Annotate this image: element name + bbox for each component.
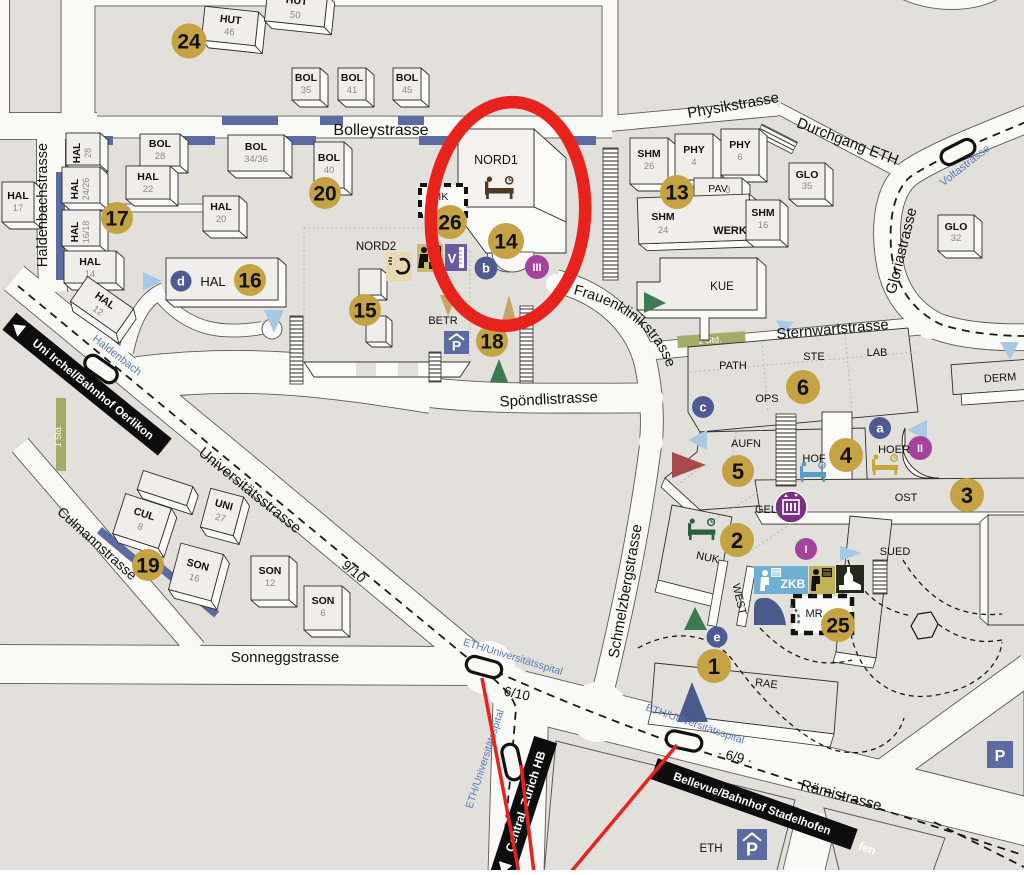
- svg-text:c: c: [699, 400, 706, 415]
- svg-text:18: 18: [480, 331, 504, 354]
- svg-text:P: P: [452, 338, 461, 354]
- svg-text:12: 12: [265, 578, 276, 589]
- svg-text:BOL: BOL: [318, 152, 341, 164]
- svg-text:1 Std.: 1 Std.: [53, 425, 63, 447]
- svg-text:KUE: KUE: [710, 281, 734, 293]
- svg-text:V: V: [448, 251, 457, 266]
- svg-text:b: b: [482, 261, 490, 276]
- svg-text:16: 16: [238, 270, 261, 293]
- svg-text:BOL: BOL: [341, 72, 364, 84]
- svg-text:45: 45: [402, 85, 413, 96]
- svg-text:6: 6: [737, 152, 742, 163]
- svg-text:HAL: HAL: [200, 274, 225, 289]
- svg-text:WERK: WERK: [713, 225, 747, 237]
- svg-text:SHM: SHM: [637, 148, 661, 160]
- svg-text:25: 25: [826, 615, 850, 638]
- svg-text:OST: OST: [895, 492, 918, 504]
- svg-text:26: 26: [438, 212, 461, 235]
- svg-text:16/18: 16/18: [81, 221, 91, 244]
- svg-text:50: 50: [289, 9, 301, 21]
- svg-text:a: a: [876, 421, 884, 436]
- svg-text:2: 2: [731, 528, 743, 553]
- svg-text:OPS: OPS: [755, 393, 778, 405]
- svg-text:15: 15: [353, 300, 377, 323]
- svg-text:4: 4: [691, 157, 696, 168]
- svg-text:17: 17: [105, 208, 128, 231]
- svg-text:34/36: 34/36: [244, 154, 268, 165]
- svg-text:d: d: [177, 274, 185, 289]
- svg-text:16: 16: [758, 220, 769, 231]
- svg-text:28: 28: [83, 148, 93, 158]
- svg-text:BOL: BOL: [149, 138, 172, 150]
- svg-text:41: 41: [347, 85, 358, 96]
- svg-text:SON: SON: [259, 565, 282, 577]
- svg-text:NORD1: NORD1: [474, 153, 518, 167]
- svg-text:HAL: HAL: [210, 201, 232, 213]
- svg-text:NORD2: NORD2: [356, 241, 396, 253]
- svg-text:14: 14: [494, 231, 518, 254]
- svg-text:P: P: [995, 748, 1006, 765]
- svg-text:LAB: LAB: [867, 347, 888, 359]
- svg-text:4: 4: [840, 443, 853, 468]
- svg-text:35: 35: [301, 85, 312, 96]
- svg-text:24/26: 24/26: [81, 178, 91, 201]
- svg-text:20: 20: [313, 183, 336, 206]
- svg-text:BOL: BOL: [396, 72, 419, 84]
- svg-text:5: 5: [732, 459, 744, 484]
- svg-text:BETR: BETR: [428, 315, 457, 327]
- svg-text:ZKB: ZKB: [781, 577, 806, 591]
- svg-text:24: 24: [658, 225, 669, 236]
- svg-text:HOER: HOER: [878, 444, 910, 456]
- svg-text:III: III: [532, 262, 541, 274]
- svg-text:22: 22: [143, 184, 154, 195]
- svg-text:SHM: SHM: [751, 207, 775, 219]
- svg-text:Haldenbachstrasse: Haldenbachstrasse: [35, 143, 51, 267]
- svg-text:3: 3: [961, 483, 973, 508]
- svg-text:MR: MR: [805, 608, 822, 620]
- svg-text:Bolleystrasse: Bolleystrasse: [333, 122, 428, 139]
- svg-text:SON: SON: [312, 595, 335, 607]
- svg-text:II: II: [917, 443, 923, 455]
- svg-text:PHY: PHY: [683, 144, 705, 156]
- svg-text:HAL: HAL: [70, 179, 81, 200]
- svg-text:BOL: BOL: [245, 141, 268, 153]
- svg-text:PATH: PATH: [719, 360, 747, 372]
- svg-text:35: 35: [802, 181, 813, 192]
- svg-text:AUFN: AUFN: [731, 438, 761, 450]
- svg-text:Sonneggstrasse: Sonneggstrasse: [231, 649, 339, 666]
- svg-text:HAL: HAL: [137, 171, 159, 183]
- svg-text:DERM: DERM: [984, 371, 1017, 385]
- svg-text:6: 6: [320, 608, 325, 619]
- svg-text:e: e: [713, 630, 720, 645]
- svg-text:BOL: BOL: [295, 72, 318, 84]
- svg-text:28: 28: [155, 151, 166, 162]
- svg-text:26: 26: [644, 161, 655, 172]
- svg-text:GEL: GEL: [755, 504, 777, 516]
- svg-text:PHY: PHY: [729, 139, 751, 151]
- svg-text:HOF: HOF: [802, 453, 826, 465]
- svg-text:STE: STE: [803, 351, 824, 363]
- svg-text:13: 13: [665, 182, 688, 205]
- svg-text:6: 6: [797, 375, 809, 400]
- svg-text:HAL: HAL: [70, 222, 81, 243]
- svg-text:24: 24: [177, 31, 201, 54]
- svg-text:I: I: [804, 544, 807, 556]
- svg-text:19: 19: [136, 555, 159, 578]
- svg-text:HUT: HUT: [219, 13, 242, 27]
- svg-text:HAL: HAL: [72, 143, 83, 164]
- svg-text:1: 1: [708, 654, 720, 679]
- svg-text:P: P: [746, 839, 758, 859]
- svg-text:ETH: ETH: [700, 843, 723, 855]
- svg-text:17: 17: [13, 203, 24, 214]
- svg-text:20: 20: [216, 214, 227, 225]
- svg-text:HAL: HAL: [79, 256, 101, 268]
- svg-text:SHM: SHM: [651, 211, 675, 223]
- svg-text:SUED: SUED: [880, 546, 911, 558]
- svg-text:GLO: GLO: [945, 221, 968, 233]
- svg-text:46: 46: [223, 26, 235, 38]
- svg-text:32: 32: [951, 233, 962, 244]
- svg-text:GLO: GLO: [796, 169, 819, 181]
- svg-text:40: 40: [324, 165, 335, 176]
- svg-text:HAL: HAL: [7, 190, 29, 202]
